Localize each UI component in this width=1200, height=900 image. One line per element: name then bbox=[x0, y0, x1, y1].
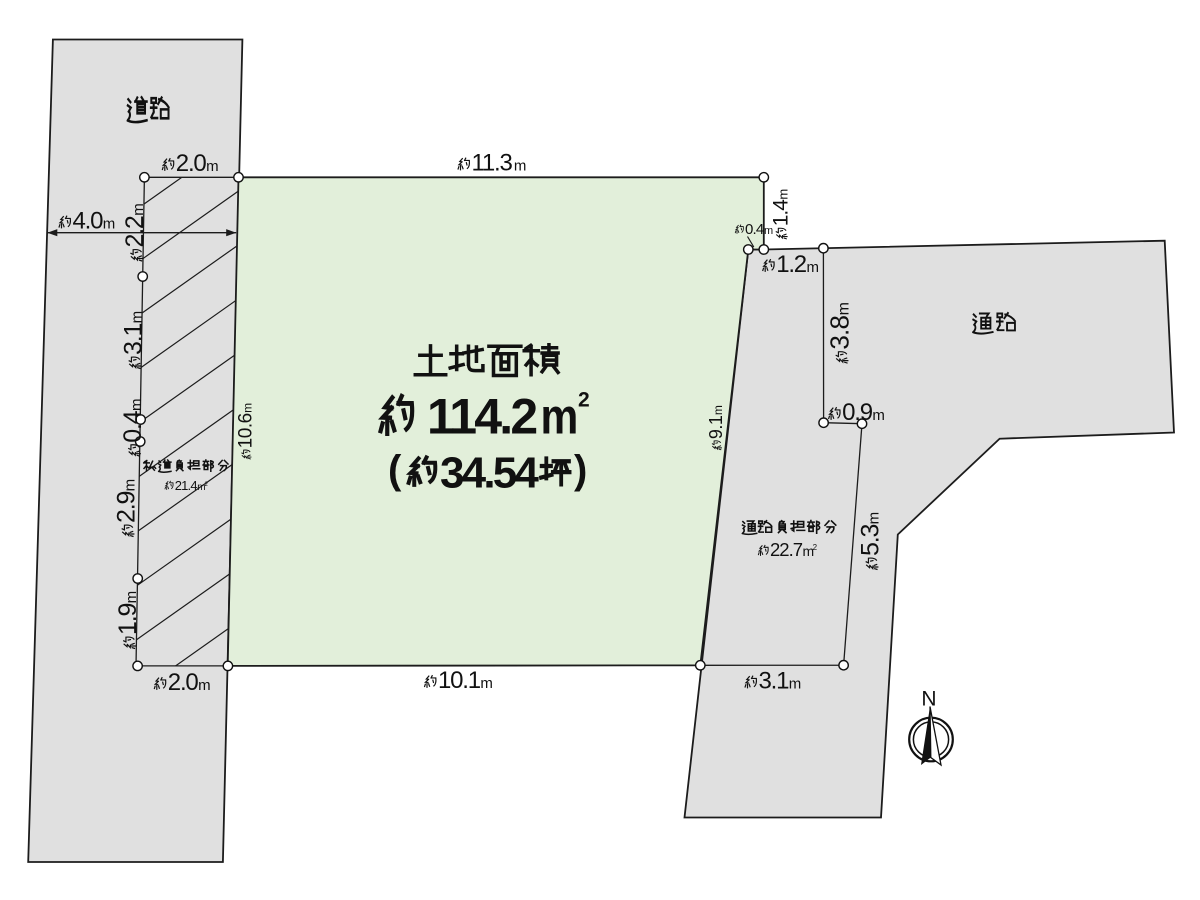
svg-text:10.6: 10.6 bbox=[236, 413, 257, 448]
svg-text:m: m bbox=[206, 158, 219, 175]
svg-text:9.1: 9.1 bbox=[706, 415, 726, 439]
svg-text:22.7: 22.7 bbox=[770, 539, 803, 560]
svg-text:m: m bbox=[123, 591, 140, 604]
svg-text:34.54: 34.54 bbox=[440, 449, 539, 498]
svg-text:0.4: 0.4 bbox=[745, 221, 764, 238]
svg-text:1.9: 1.9 bbox=[114, 604, 142, 635]
svg-text:N: N bbox=[921, 688, 936, 711]
svg-text:m: m bbox=[872, 407, 885, 424]
svg-text:m: m bbox=[129, 311, 146, 324]
svg-text:21.4: 21.4 bbox=[175, 478, 198, 493]
svg-text:3.8: 3.8 bbox=[825, 316, 855, 350]
svg-text:2.9: 2.9 bbox=[113, 492, 141, 523]
svg-text:0.4: 0.4 bbox=[119, 410, 147, 442]
svg-text:m: m bbox=[711, 405, 725, 415]
svg-text:m: m bbox=[130, 203, 147, 216]
svg-text:2: 2 bbox=[578, 389, 590, 412]
svg-text:m: m bbox=[789, 676, 802, 693]
svg-text:m: m bbox=[541, 388, 579, 444]
svg-text:m: m bbox=[776, 189, 791, 200]
svg-text:m: m bbox=[514, 158, 527, 175]
svg-text:5.3: 5.3 bbox=[857, 525, 885, 556]
svg-text:4.0: 4.0 bbox=[73, 208, 104, 235]
svg-text:114.2: 114.2 bbox=[427, 389, 536, 445]
svg-text:2.0: 2.0 bbox=[176, 150, 207, 177]
svg-text:2.2: 2.2 bbox=[121, 216, 149, 247]
svg-text:2.0: 2.0 bbox=[168, 669, 199, 696]
svg-text:m: m bbox=[866, 512, 883, 525]
svg-text:3.1: 3.1 bbox=[120, 324, 148, 355]
svg-text:10.1: 10.1 bbox=[438, 667, 481, 694]
svg-text:m: m bbox=[480, 675, 493, 692]
svg-text:1.4: 1.4 bbox=[770, 199, 793, 227]
svg-text:1.2: 1.2 bbox=[776, 251, 807, 278]
svg-text:m: m bbox=[122, 479, 139, 492]
svg-text:m: m bbox=[128, 399, 145, 412]
svg-text:m: m bbox=[836, 302, 853, 315]
svg-text:0.9: 0.9 bbox=[842, 399, 873, 426]
svg-text:m: m bbox=[241, 403, 255, 413]
svg-text:2: 2 bbox=[813, 543, 818, 552]
svg-text:3.1: 3.1 bbox=[759, 668, 790, 695]
svg-text:m: m bbox=[807, 259, 820, 276]
svg-text:(: ( bbox=[388, 448, 402, 492]
svg-text:): ) bbox=[574, 448, 587, 492]
svg-text:m: m bbox=[103, 216, 116, 233]
svg-text:11.3: 11.3 bbox=[472, 150, 513, 177]
svg-text:m: m bbox=[198, 677, 211, 694]
